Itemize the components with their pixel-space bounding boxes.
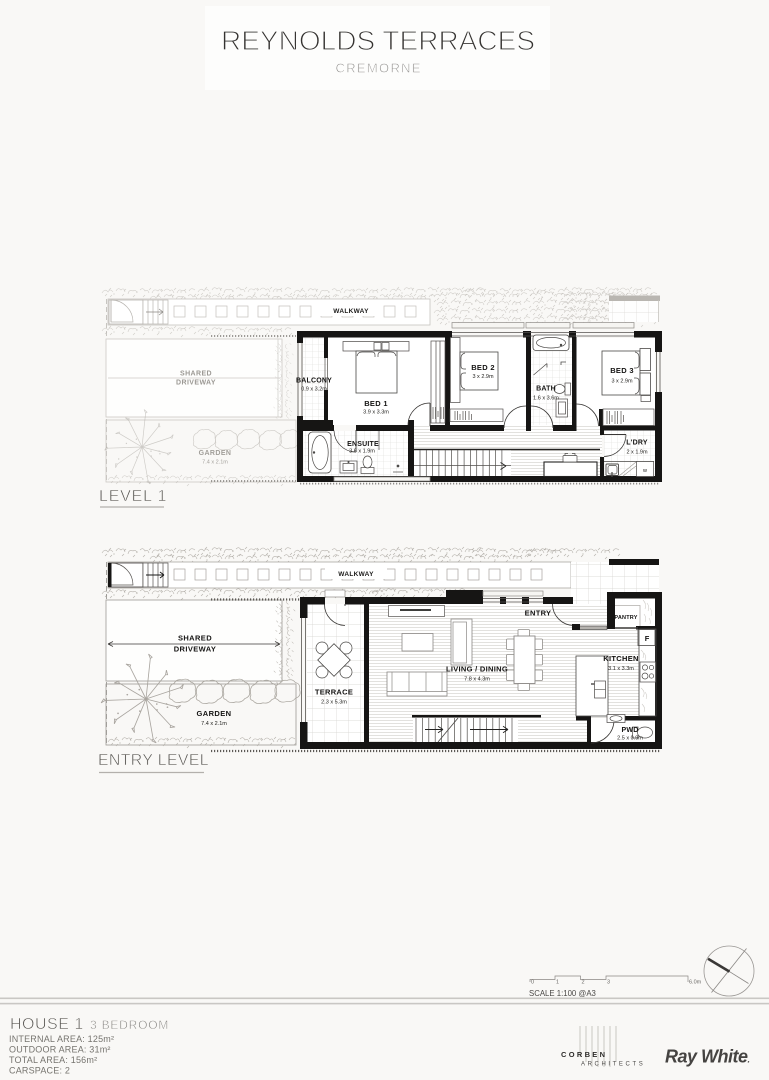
svg-text:LIVING / DINING: LIVING / DINING <box>446 665 508 674</box>
svg-text:WALKWAY: WALKWAY <box>338 571 374 578</box>
svg-text:GARDEN: GARDEN <box>199 450 232 457</box>
svg-text:GARDEN: GARDEN <box>197 709 232 718</box>
svg-text:LEVEL 1: LEVEL 1 <box>99 488 167 505</box>
svg-text:REYNOLDS TERRACES: REYNOLDS TERRACES <box>221 25 537 56</box>
svg-text:DRIVEWAY: DRIVEWAY <box>174 645 217 654</box>
svg-text:2 x 1.9m: 2 x 1.9m <box>626 450 648 456</box>
svg-text:2.3 x 5.3m: 2.3 x 5.3m <box>321 700 347 706</box>
svg-text:KITCHEN: KITCHEN <box>603 654 638 663</box>
svg-text:PANTRY: PANTRY <box>614 615 637 621</box>
svg-text:6.0m: 6.0m <box>689 980 702 986</box>
svg-text:2.5 x 0.9m: 2.5 x 0.9m <box>617 736 643 742</box>
svg-text:PWD: PWD <box>622 727 639 734</box>
svg-text:w: w <box>642 468 647 474</box>
svg-text:2: 2 <box>582 980 585 986</box>
svg-text:WALKWAY: WALKWAY <box>333 308 369 315</box>
svg-text:SHARED: SHARED <box>180 371 212 378</box>
svg-text:ARCHITECTS: ARCHITECTS <box>581 1062 645 1068</box>
svg-text:BATH: BATH <box>536 386 556 393</box>
svg-text:7.4 x 2.1m: 7.4 x 2.1m <box>201 721 227 727</box>
svg-text:OUTDOOR AREA: 31m²: OUTDOOR AREA: 31m² <box>9 1045 111 1055</box>
svg-text:0: 0 <box>531 980 534 986</box>
svg-text:3.6 x 1.9m: 3.6 x 1.9m <box>349 449 375 455</box>
svg-text:1: 1 <box>556 980 559 986</box>
svg-text:HOUSE 1: HOUSE 1 <box>10 1016 84 1033</box>
svg-text:CREMORNE: CREMORNE <box>336 61 423 76</box>
svg-text:CORBEN: CORBEN <box>561 1050 607 1059</box>
svg-text:TOTAL AREA: 156m²: TOTAL AREA: 156m² <box>9 1055 97 1065</box>
svg-text:BED 3: BED 3 <box>610 366 634 375</box>
svg-text:F: F <box>645 634 650 643</box>
svg-text:1.6 x 3.6m: 1.6 x 3.6m <box>533 396 559 402</box>
svg-text:CARSPACE: 2: CARSPACE: 2 <box>9 1066 70 1076</box>
svg-text:L'DRY: L'DRY <box>626 440 648 447</box>
svg-text:SHARED: SHARED <box>178 634 212 643</box>
svg-text:7.4 x 2.1m: 7.4 x 2.1m <box>202 460 228 466</box>
svg-text:SCALE 1:100 @A3: SCALE 1:100 @A3 <box>529 989 596 998</box>
svg-text:3 x 2.9m: 3 x 2.9m <box>611 379 633 385</box>
svg-text:3.1 x 3.3m: 3.1 x 3.3m <box>608 666 634 672</box>
svg-text:3 x 2.9m: 3 x 2.9m <box>472 374 494 380</box>
svg-text:BED 2: BED 2 <box>471 363 495 372</box>
svg-text:ENTRY LEVEL: ENTRY LEVEL <box>98 752 209 769</box>
svg-text:TERRACE: TERRACE <box>315 688 353 697</box>
svg-text:3: 3 <box>607 980 610 986</box>
svg-text:7.8 x 4.3m: 7.8 x 4.3m <box>464 677 490 683</box>
svg-text:ENTRY: ENTRY <box>525 609 552 618</box>
svg-text:ENSUITE: ENSUITE <box>347 441 379 448</box>
svg-text:DRIVEWAY: DRIVEWAY <box>176 380 216 387</box>
svg-text:BALCONY: BALCONY <box>296 378 332 385</box>
svg-text:INTERNAL AREA: 125m²: INTERNAL AREA: 125m² <box>9 1034 114 1044</box>
svg-text:Ray White.: Ray White. <box>665 1047 750 1067</box>
svg-text:3.9 x 3.3m: 3.9 x 3.3m <box>363 410 389 416</box>
svg-text:0.9 x 3.2m: 0.9 x 3.2m <box>301 387 327 393</box>
svg-text:BED 1: BED 1 <box>364 399 388 408</box>
svg-text:3 BEDROOM: 3 BEDROOM <box>90 1018 169 1032</box>
